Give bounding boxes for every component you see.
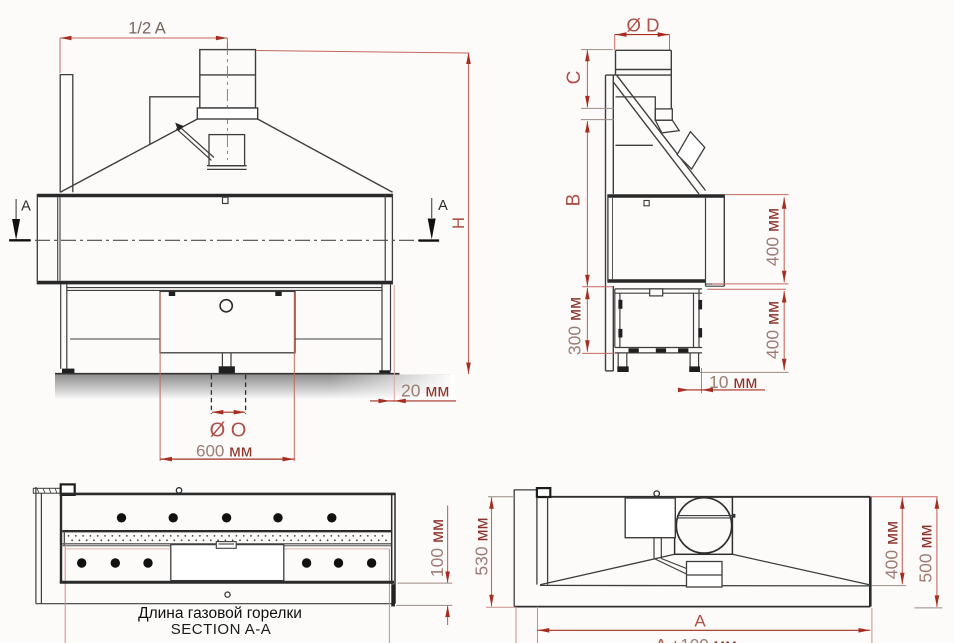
svg-text:A: A (694, 612, 706, 631)
svg-text:100 мм: 100 мм (427, 519, 447, 577)
svg-text:300 мм: 300 мм (565, 297, 585, 355)
svg-text:400 мм: 400 мм (763, 301, 783, 359)
svg-text:C: C (564, 71, 585, 85)
svg-text:20 мм: 20 мм (401, 381, 449, 401)
svg-text:10 мм: 10 мм (709, 372, 757, 392)
svg-text:Длина газовой горелки: Длина газовой горелки (138, 605, 302, 622)
svg-text:H: H (450, 217, 468, 229)
svg-text:B: B (564, 194, 585, 207)
svg-text:SECTION A-A: SECTION A-A (171, 621, 272, 638)
svg-text:Ø O: Ø O (210, 420, 247, 442)
svg-text:Ø D: Ø D (627, 15, 660, 36)
svg-text:A +100 мм: A +100 мм (655, 636, 737, 643)
svg-text:600 мм: 600 мм (196, 442, 252, 461)
svg-text:400 мм: 400 мм (882, 521, 902, 579)
svg-text:500 мм: 500 мм (916, 524, 936, 582)
svg-text:A: A (438, 198, 448, 214)
svg-text:1/2 A: 1/2 A (128, 20, 166, 38)
svg-text:400 мм: 400 мм (763, 208, 783, 266)
svg-text:530 мм: 530 мм (472, 517, 492, 575)
svg-text:A: A (21, 199, 31, 215)
